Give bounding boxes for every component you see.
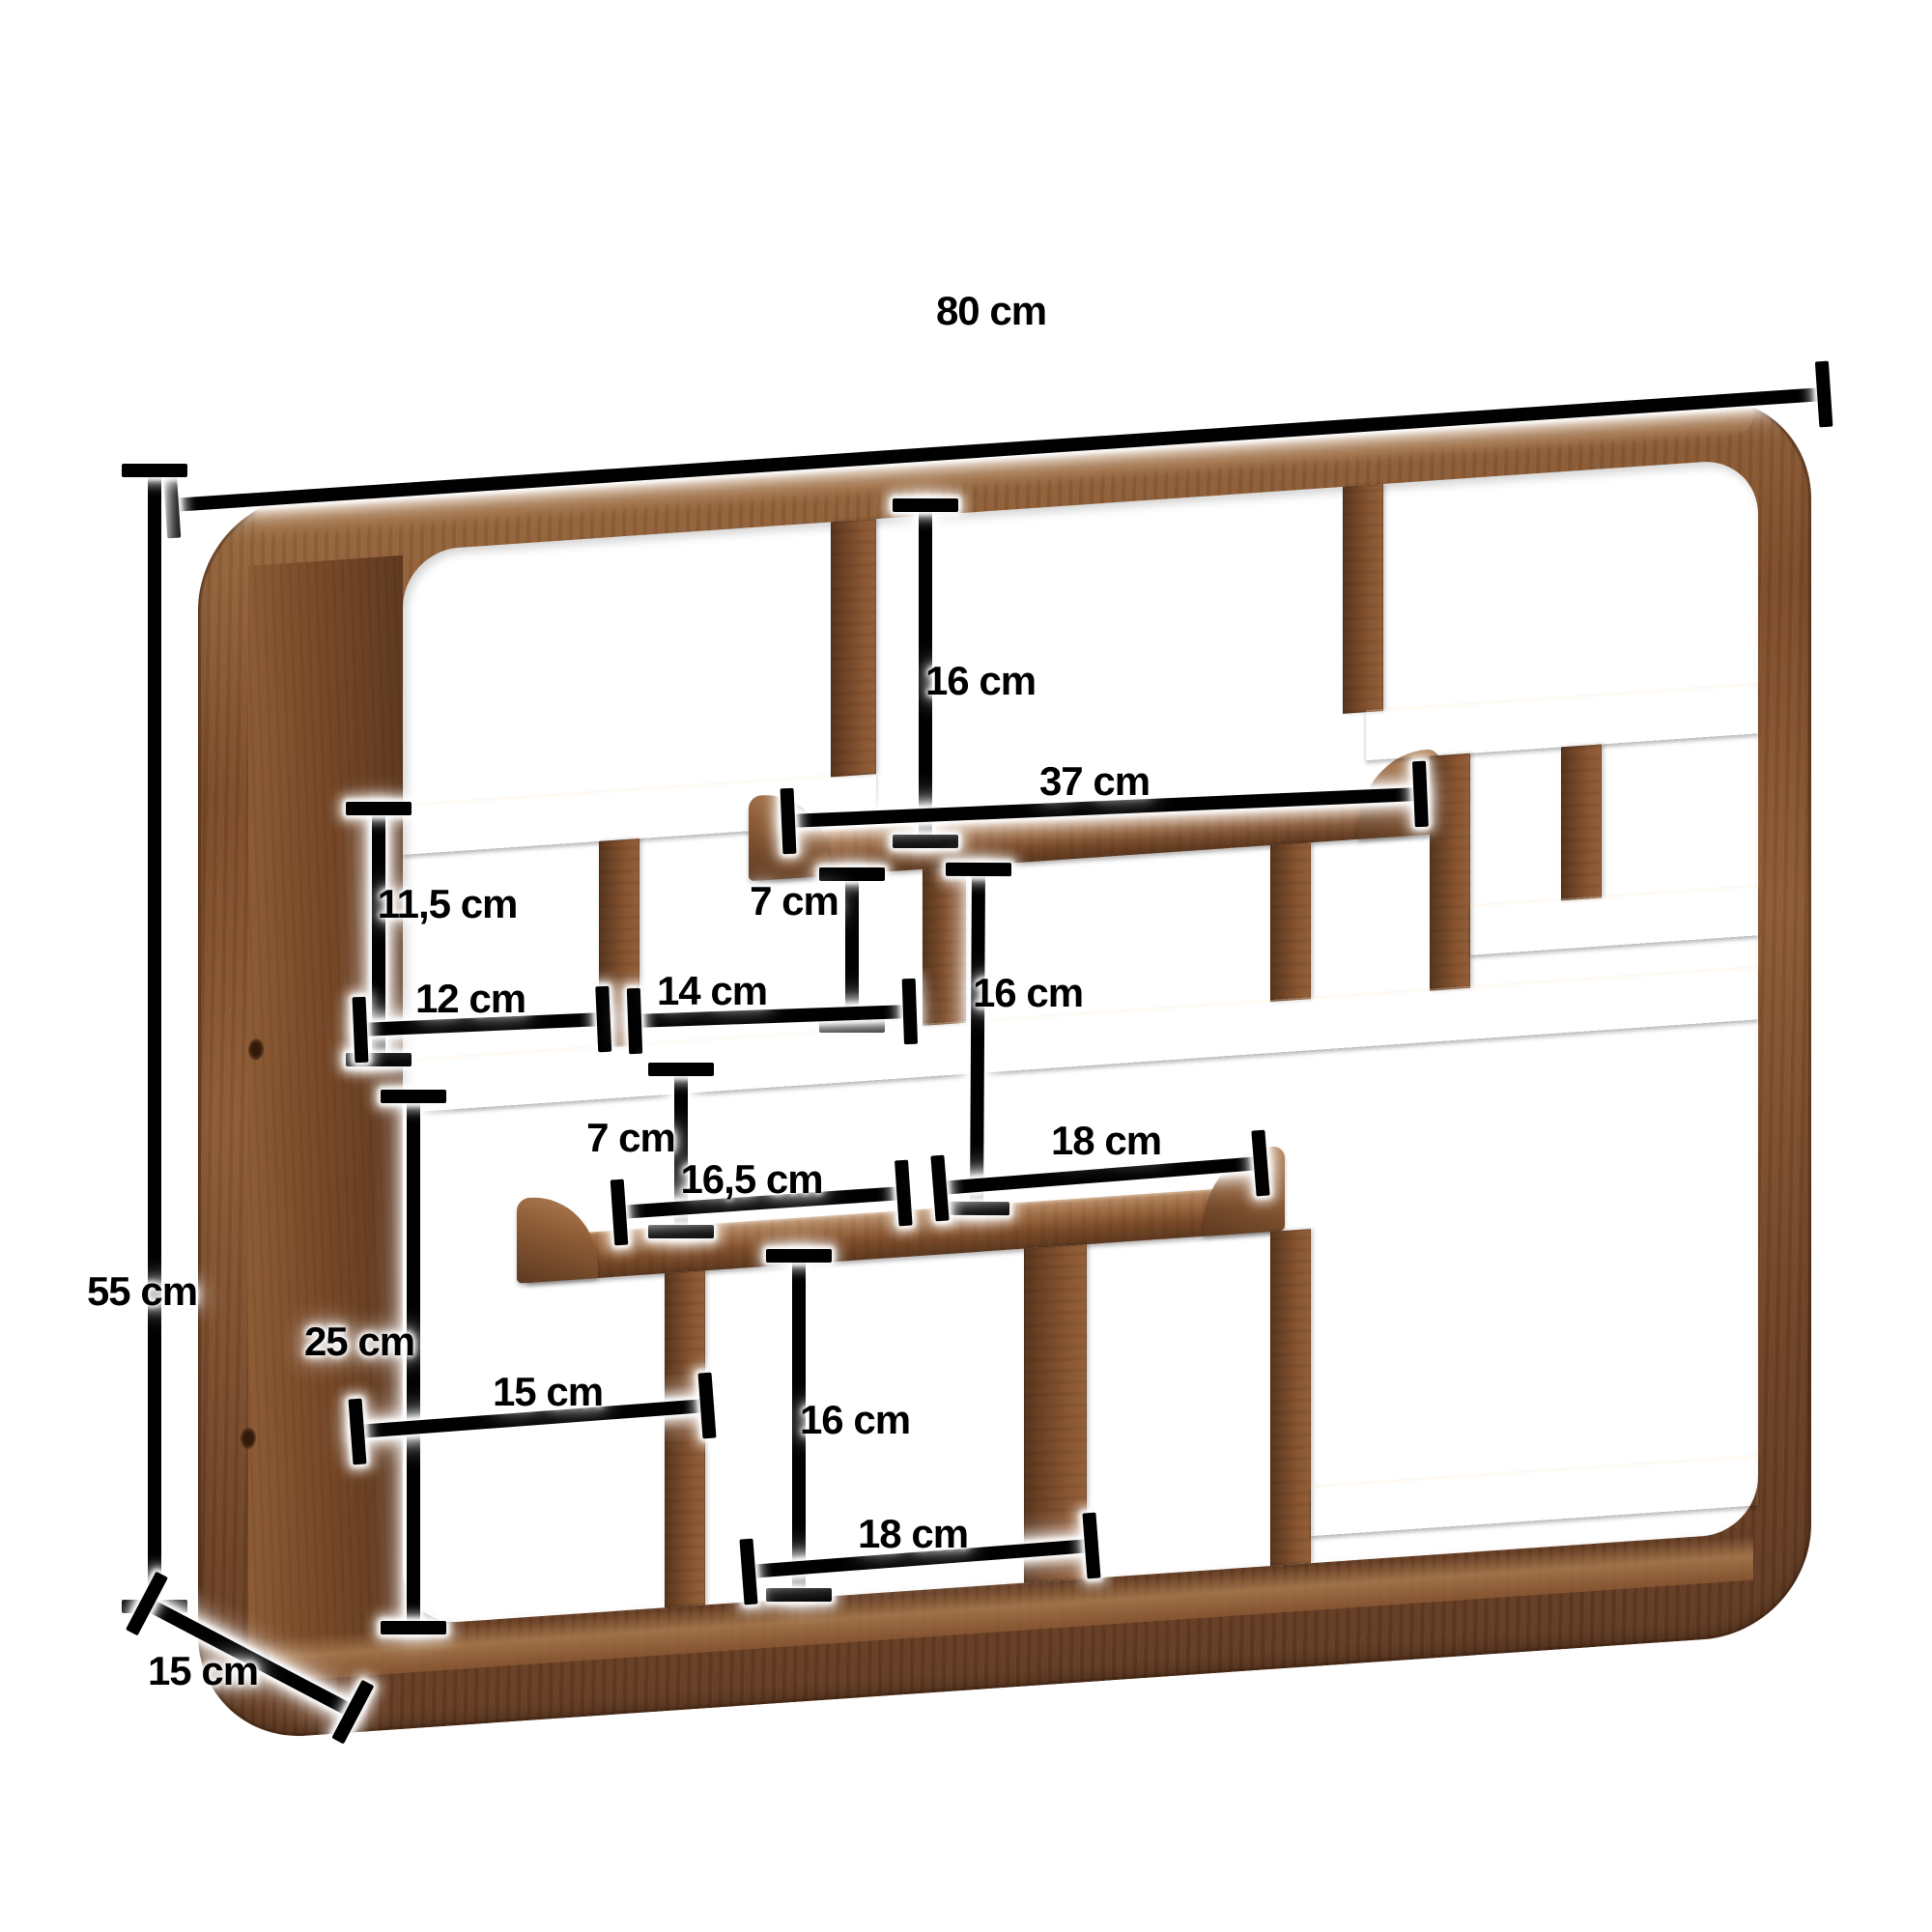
dimension-label: 25 cm	[304, 1321, 414, 1362]
dimension-label: 80 cm	[936, 291, 1046, 331]
product-dimension-image: 80 cm55 cm15 cm16 cm37 cm7 cm16 cm11,5 c…	[0, 0, 1932, 1932]
dimension-label: 14 cm	[657, 971, 767, 1011]
dimension-label: 16 cm	[925, 661, 1036, 701]
dimension-label: 16,5 cm	[680, 1159, 822, 1200]
dimension-line	[148, 470, 161, 1606]
dimension-label: 7 cm	[586, 1118, 675, 1158]
dimension-label: 15 cm	[493, 1372, 603, 1412]
dimension-label: 37 cm	[1039, 761, 1150, 802]
dimension-line	[970, 869, 985, 1208]
dimension-label: 55 cm	[87, 1271, 197, 1312]
dimension-label: 16 cm	[800, 1400, 910, 1440]
dimension-label: 18 cm	[1051, 1121, 1161, 1161]
dimension-label: 15 cm	[148, 1651, 258, 1691]
dimension-annotations: 80 cm55 cm15 cm16 cm37 cm7 cm16 cm11,5 c…	[0, 0, 1932, 1932]
dimension-label: 16 cm	[973, 973, 1083, 1013]
dimension-label: 7 cm	[750, 881, 838, 922]
dimension-line	[845, 874, 859, 1026]
dimension-label: 11,5 cm	[378, 884, 518, 924]
dimension-label: 12 cm	[415, 979, 526, 1019]
dimension-label: 18 cm	[858, 1514, 968, 1554]
dimension-line	[172, 387, 1825, 512]
